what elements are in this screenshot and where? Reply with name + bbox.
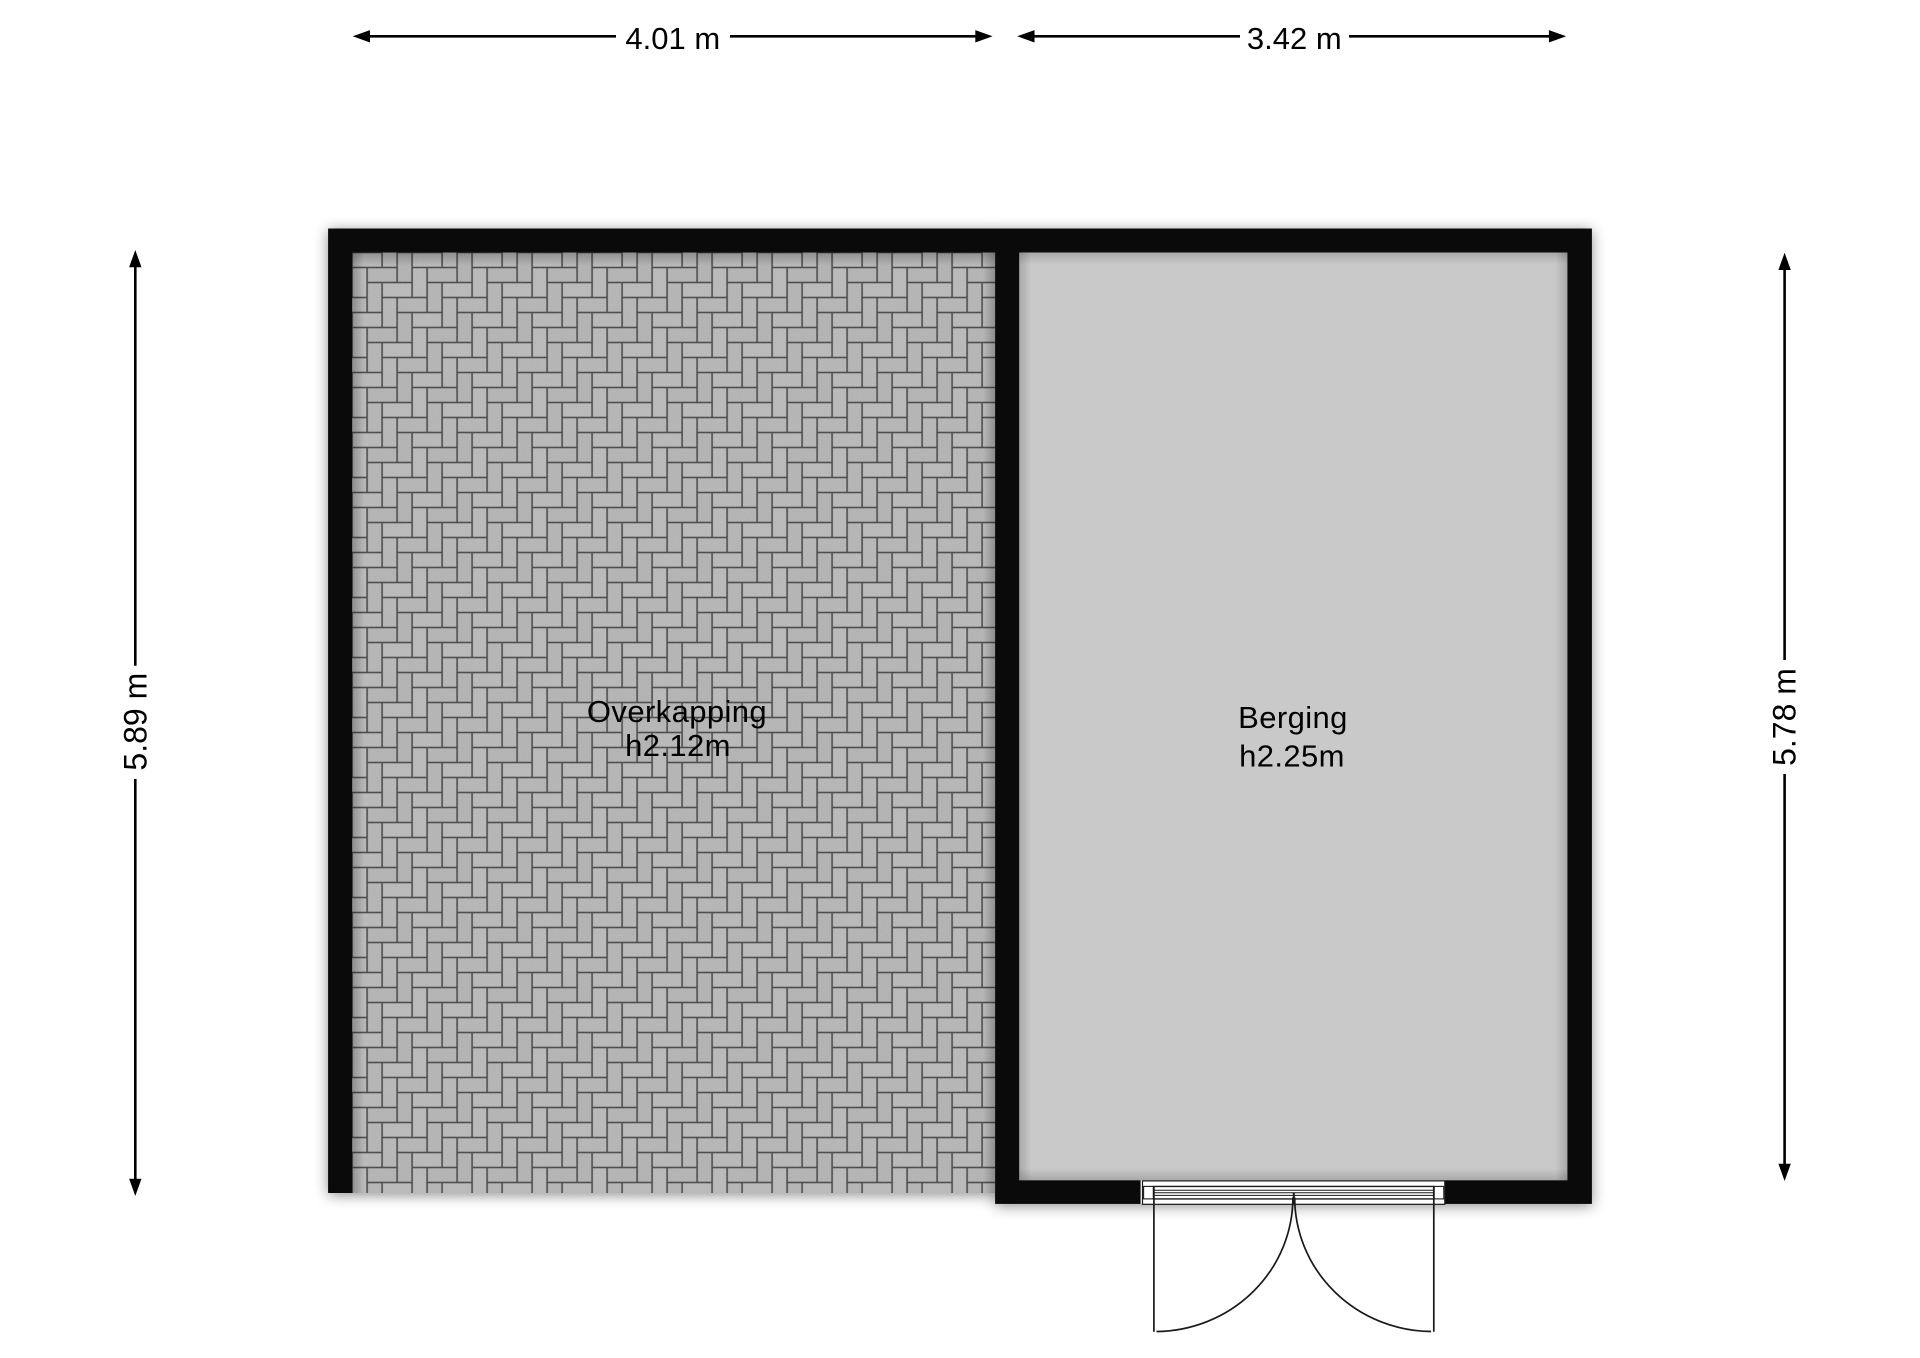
svg-text:5.89 m: 5.89 m xyxy=(118,673,154,771)
svg-text:Berging: Berging xyxy=(1238,700,1348,735)
svg-text:h2.12m: h2.12m xyxy=(625,728,731,763)
svg-text:3.42 m: 3.42 m xyxy=(1247,21,1342,56)
svg-text:5.78 m: 5.78 m xyxy=(1767,668,1803,766)
svg-text:Overkapping: Overkapping xyxy=(587,694,767,729)
svg-text:h2.25m: h2.25m xyxy=(1239,739,1345,774)
svg-text:4.01 m: 4.01 m xyxy=(625,21,720,56)
